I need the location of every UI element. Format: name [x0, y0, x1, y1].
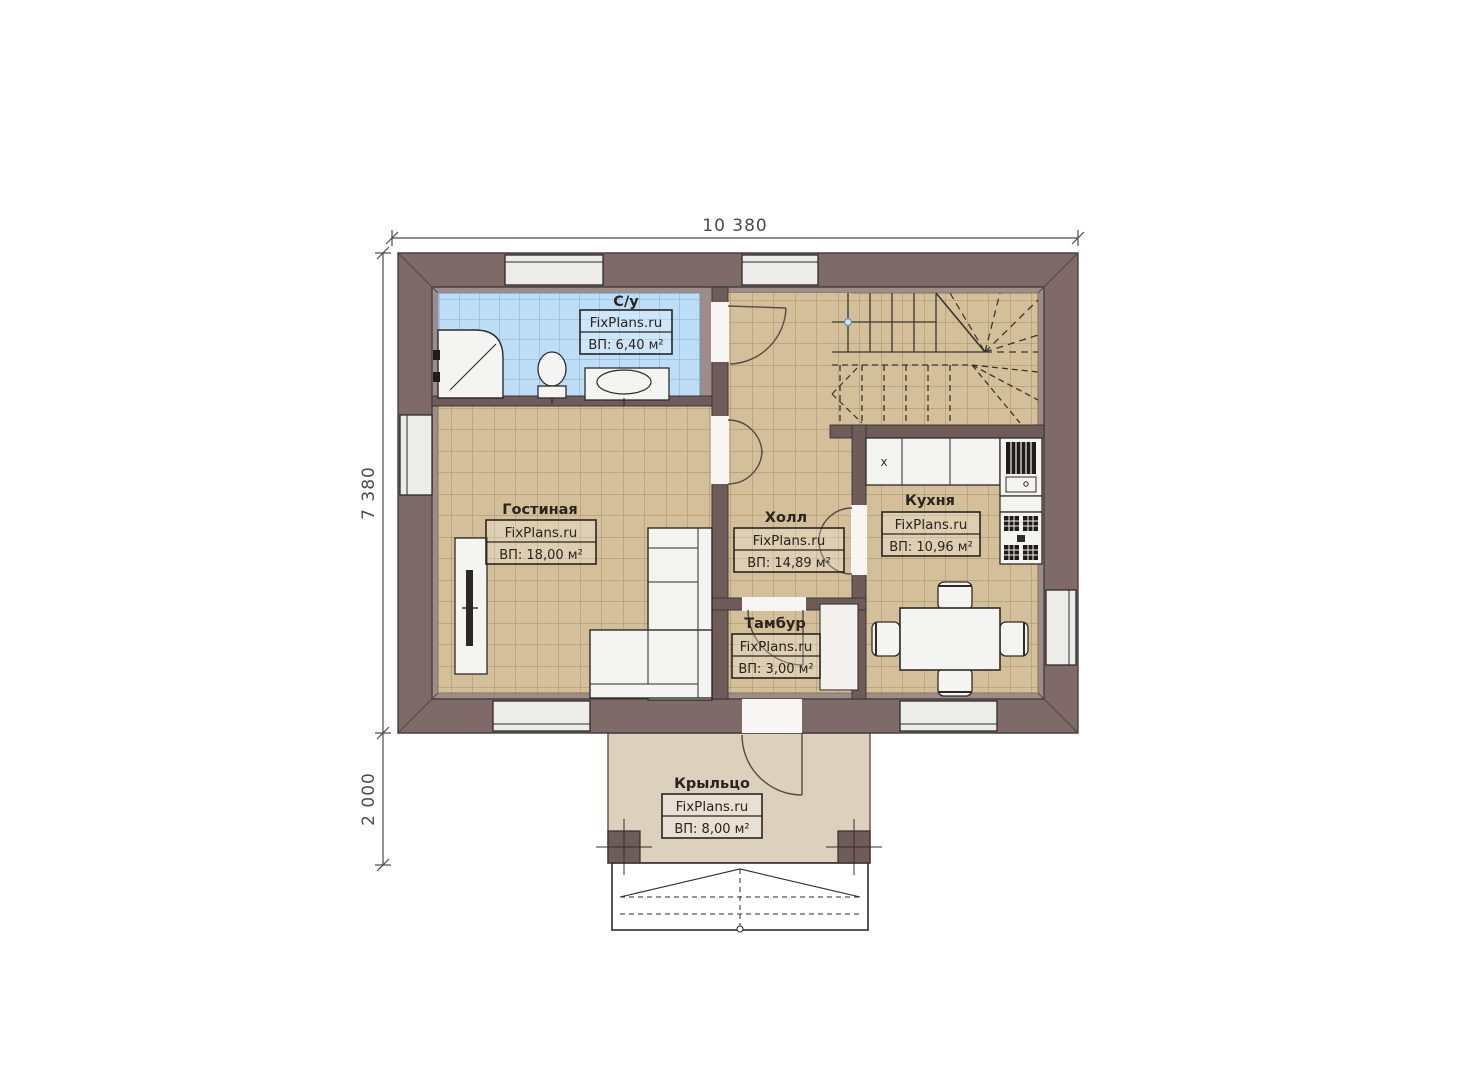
window-right-kitchen: [1046, 590, 1076, 665]
kitchen-cabinet: [1000, 496, 1042, 512]
dining-table: [900, 608, 1000, 670]
fridge: [1000, 438, 1042, 496]
area-porch: ВП: 8,00 м²: [674, 822, 749, 837]
sink-marker: x: [880, 455, 887, 469]
shower-faucet: [433, 372, 440, 382]
brand-bathroom: FixPlans.ru: [590, 315, 663, 331]
sink-vanity: [585, 368, 669, 406]
brand-kitchen: FixPlans.ru: [895, 517, 968, 533]
brand-tambour: FixPlans.ru: [740, 639, 813, 655]
room-name-kitchen: Кухня: [905, 493, 955, 509]
floor-plan-drawing: 10 380 7 380 2 000: [0, 0, 1473, 1080]
room-name-bathroom: С/у: [613, 294, 639, 310]
brand-living: FixPlans.ru: [505, 525, 578, 541]
opening-bathroom: [711, 302, 729, 362]
window-left-living: [400, 415, 432, 495]
opening-tambour: [742, 597, 806, 611]
porch-steps: [612, 863, 868, 932]
brand-hall: FixPlans.ru: [753, 533, 826, 549]
dimension-top-label: 10 380: [702, 216, 767, 236]
area-living: ВП: 18,00 м²: [499, 548, 583, 563]
window-bottom-living: [493, 701, 590, 731]
opening-living: [711, 416, 729, 484]
shower-faucet: [433, 350, 440, 360]
room-name-porch: Крыльцо: [674, 776, 750, 792]
area-kitchen: ВП: 10,96 м²: [889, 540, 973, 555]
window-top-bathroom: [505, 255, 603, 285]
stove: [1000, 512, 1042, 564]
dimension-left-label: 7 380: [359, 466, 379, 520]
window-bottom-kitchen: [900, 701, 997, 731]
area-hall: ВП: 14,89 м²: [747, 556, 831, 571]
room-name-hall: Холл: [765, 510, 807, 526]
window-top-hall: [742, 255, 818, 285]
brand-porch: FixPlans.ru: [676, 799, 749, 815]
opening-entrance: [742, 699, 802, 733]
shower-cabin: [433, 330, 503, 398]
stair-post-marker: [845, 319, 852, 326]
area-bathroom: ВП: 6,40 м²: [588, 338, 663, 353]
dimension-porch-label: 2 000: [359, 772, 379, 826]
toilet: [538, 352, 566, 404]
label-porch: Крыльцо FixPlans.ru ВП: 8,00 м²: [662, 776, 762, 838]
floor-plan-page: 10 380 7 380 2 000: [0, 0, 1473, 1080]
room-name-tambour: Тамбур: [744, 616, 805, 632]
room-name-living: Гостиная: [502, 502, 577, 518]
tv-stand: [455, 538, 487, 674]
kitchen-counter: x: [866, 438, 1000, 485]
opening-kitchen: [851, 505, 867, 575]
area-tambour: ВП: 3,00 м²: [738, 662, 813, 677]
tambour-closet: [820, 604, 858, 690]
